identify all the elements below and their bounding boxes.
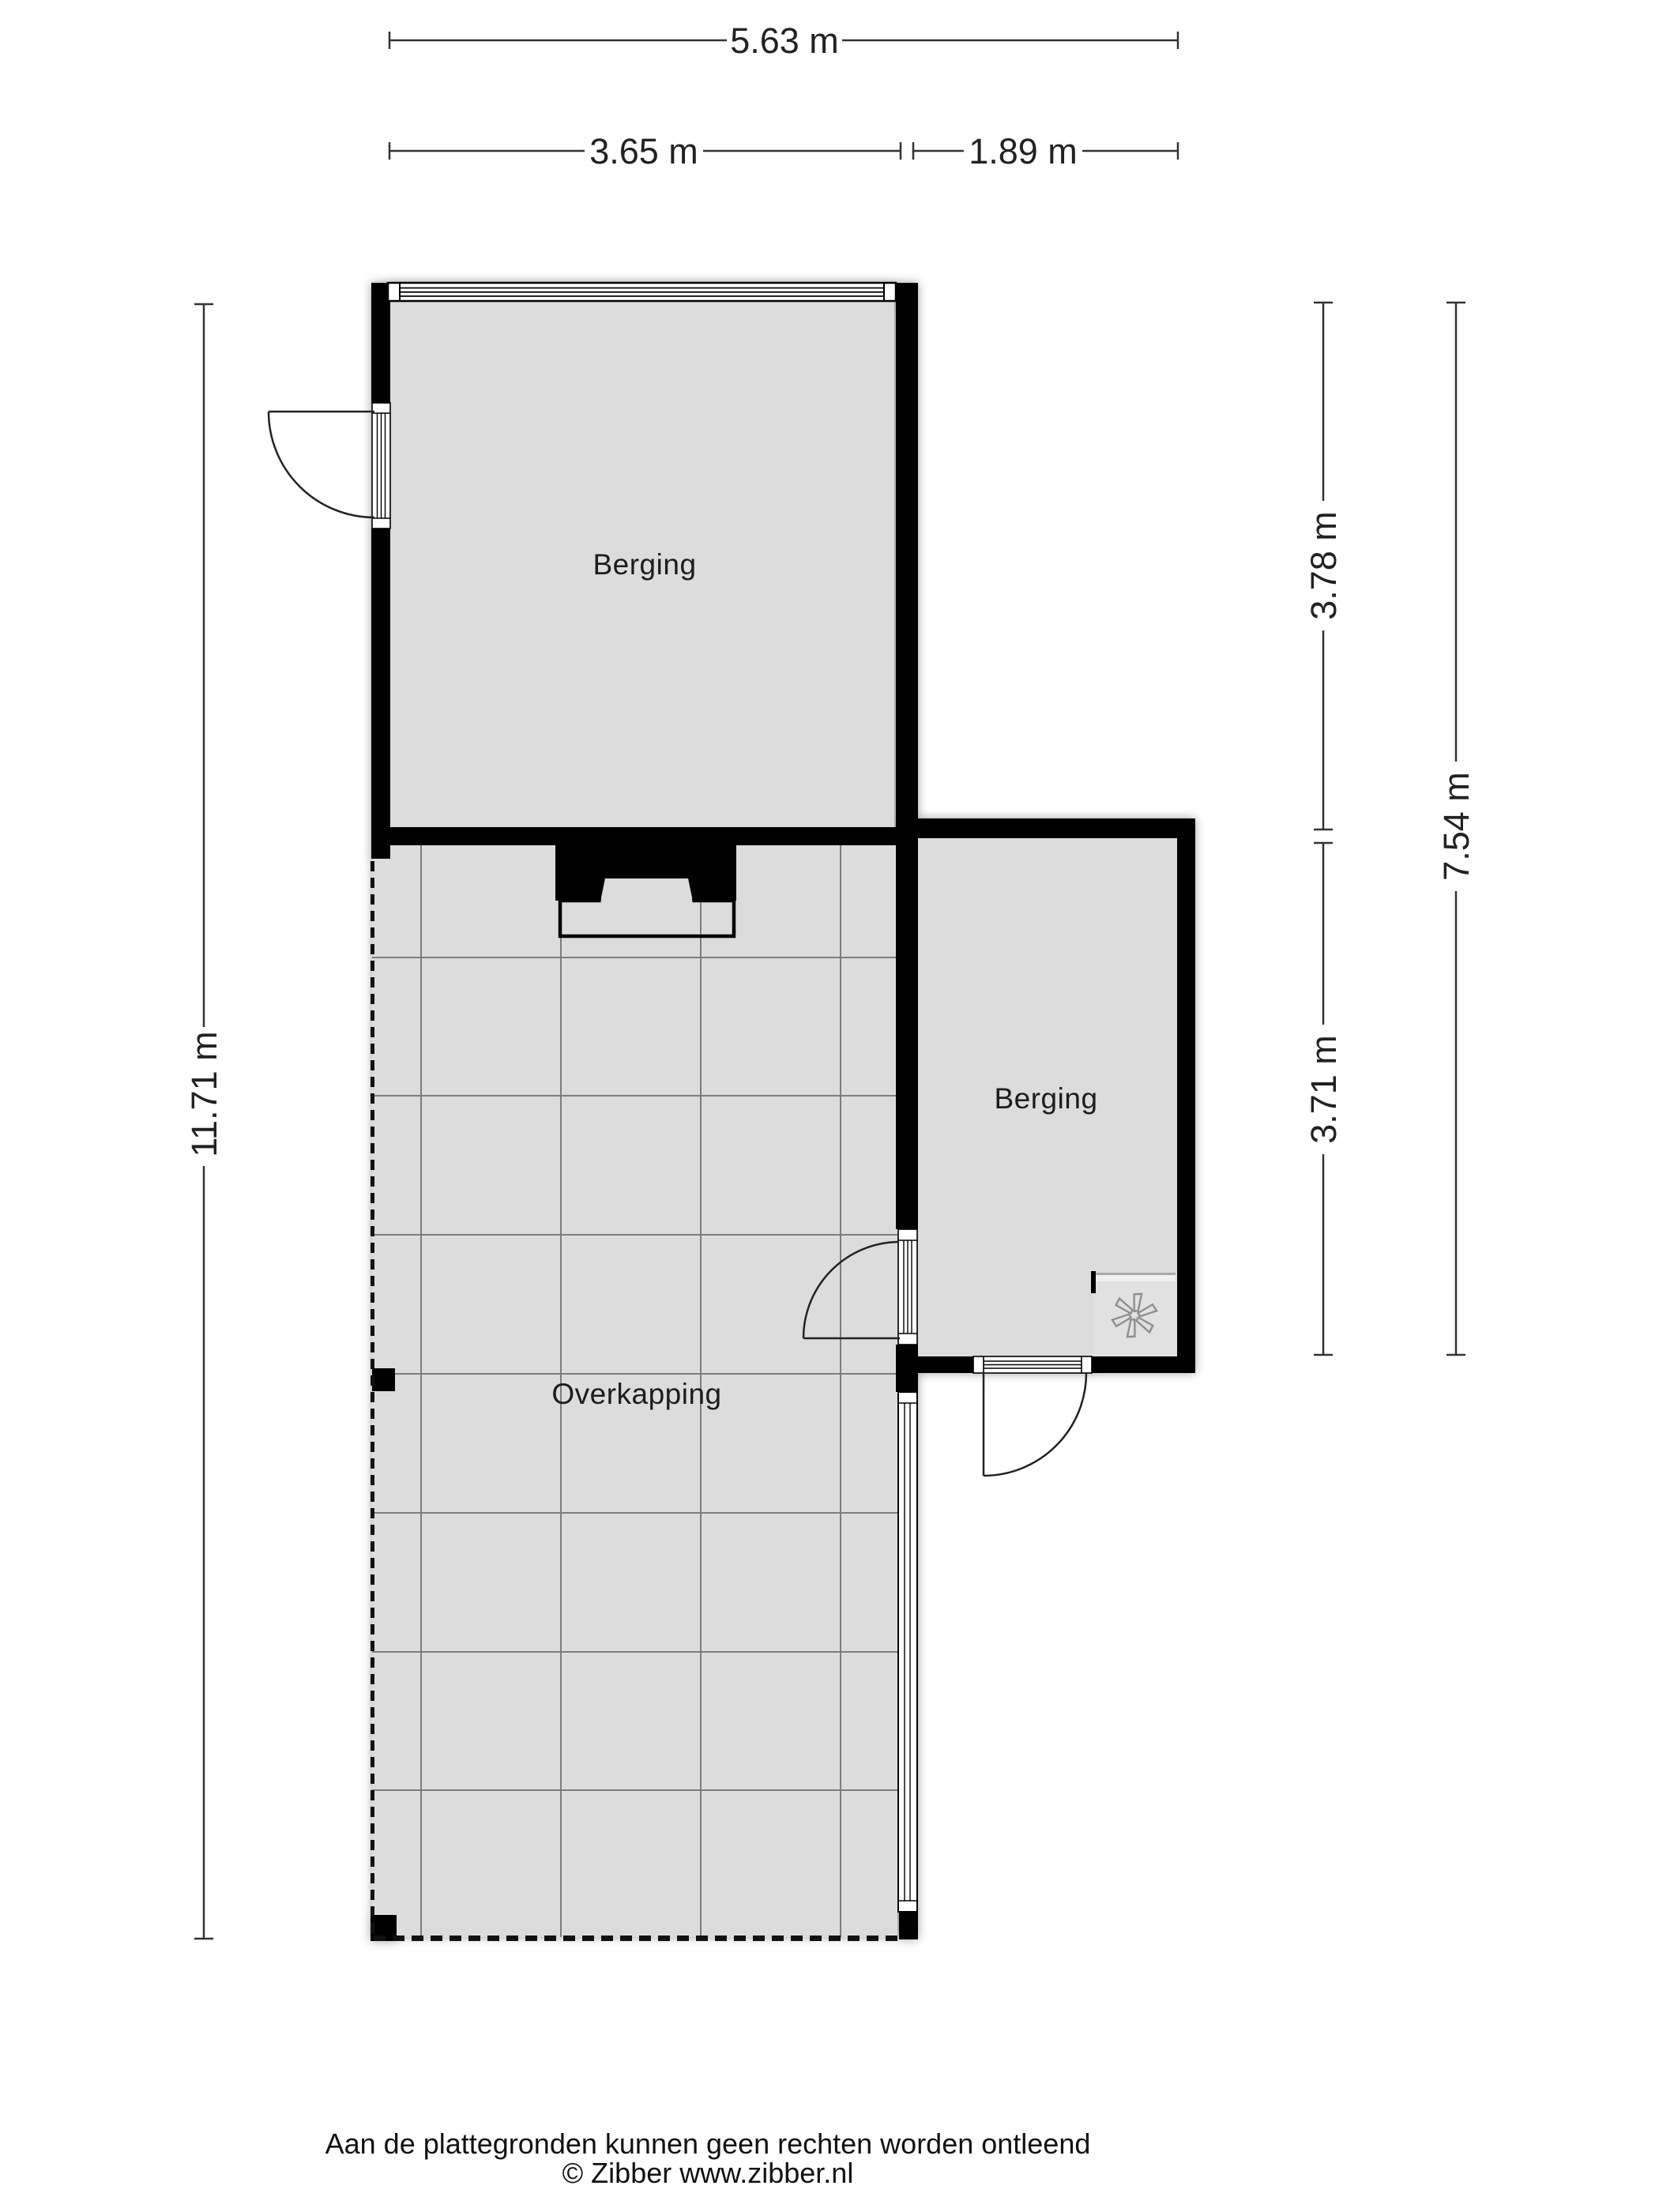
svg-text:© Zibber www.zibber.nl: © Zibber www.zibber.nl bbox=[562, 2157, 854, 2189]
svg-text:Aan de plattegronden kunnen ge: Aan de plattegronden kunnen geen rechten… bbox=[325, 2127, 1091, 2160]
svg-text:3.71 m: 3.71 m bbox=[1303, 1035, 1344, 1144]
svg-text:3.78 m: 3.78 m bbox=[1303, 511, 1344, 620]
svg-text:Berging: Berging bbox=[592, 548, 696, 581]
svg-text:11.71 m: 11.71 m bbox=[184, 1031, 224, 1157]
svg-text:1.89 m: 1.89 m bbox=[969, 131, 1078, 171]
svg-text:7.54 m: 7.54 m bbox=[1436, 772, 1477, 881]
svg-text:3.65 m: 3.65 m bbox=[589, 131, 698, 171]
svg-text:Overkapping: Overkapping bbox=[551, 1378, 721, 1410]
svg-text:5.63 m: 5.63 m bbox=[730, 21, 839, 61]
svg-text:Berging: Berging bbox=[994, 1082, 1097, 1115]
